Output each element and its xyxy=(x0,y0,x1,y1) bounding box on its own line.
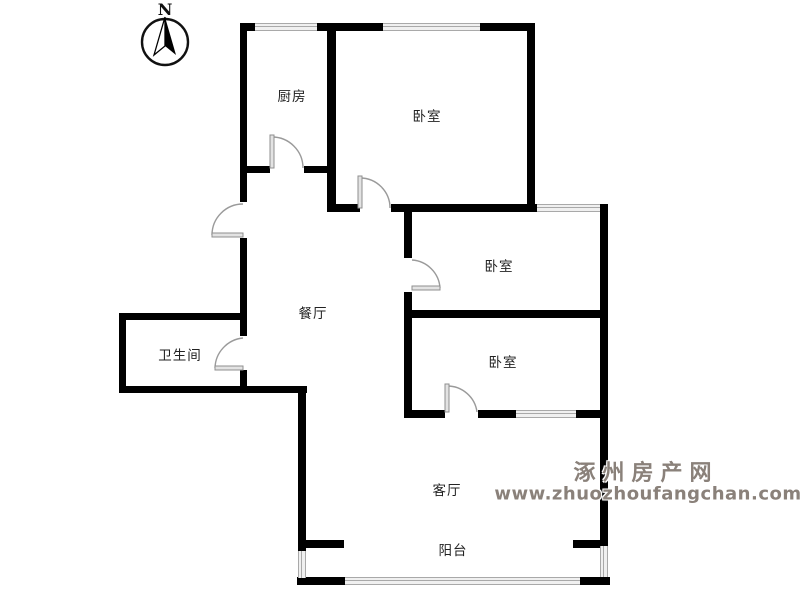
door-leaf xyxy=(270,135,274,168)
floor-plan: N xyxy=(0,0,800,600)
compass-north-label: N xyxy=(158,0,173,19)
door-leaf xyxy=(412,286,440,290)
wall xyxy=(240,23,247,202)
compass: N xyxy=(134,0,196,72)
wall xyxy=(298,386,306,551)
door-leaf xyxy=(445,384,449,412)
wall xyxy=(391,204,537,212)
north-arrow-icon xyxy=(165,17,176,55)
wall xyxy=(327,23,336,212)
room-label-bathroom: 卫生间 xyxy=(158,344,202,364)
kitchen-door xyxy=(266,132,308,173)
room-label-kitchen: 厨房 xyxy=(278,85,307,105)
room-label-living: 客厅 xyxy=(433,479,462,499)
wall xyxy=(478,410,516,418)
wall xyxy=(404,212,412,258)
entry-door xyxy=(205,198,250,245)
door-arc xyxy=(272,137,303,168)
window xyxy=(255,23,317,31)
room-label-balcony: 阳台 xyxy=(439,539,468,559)
bedroom-2-door xyxy=(408,256,444,294)
wall xyxy=(527,23,535,212)
bathroom-door xyxy=(211,334,247,374)
window xyxy=(298,551,306,578)
wall xyxy=(240,238,247,336)
door-leaf xyxy=(212,233,243,237)
door-leaf xyxy=(215,366,243,370)
wall xyxy=(297,577,345,585)
wall xyxy=(580,577,610,585)
wall xyxy=(404,310,608,318)
room-label-dining: 餐厅 xyxy=(299,302,328,322)
room-label-bedroom-1: 卧室 xyxy=(413,105,442,125)
door-arc xyxy=(360,178,390,208)
watermark-site-name: 涿州房产网 xyxy=(573,455,718,487)
window xyxy=(516,410,576,418)
door-arc xyxy=(212,204,243,235)
wall xyxy=(119,386,307,393)
watermark-site-url: www.zhuozhoufangchan.com xyxy=(494,484,800,505)
door-arc xyxy=(412,260,440,288)
door-arc xyxy=(447,386,477,412)
north-arrow-outline-icon xyxy=(154,17,165,55)
bedroom-1-door xyxy=(355,172,395,212)
wall xyxy=(404,410,445,418)
wall xyxy=(119,313,126,393)
wall xyxy=(576,410,608,418)
wall xyxy=(298,540,344,548)
window xyxy=(537,204,600,212)
window xyxy=(345,577,580,585)
bedroom-3-door xyxy=(443,380,481,416)
wall xyxy=(119,313,247,320)
window xyxy=(383,23,480,31)
room-label-bedroom-3: 卧室 xyxy=(489,351,518,371)
door-leaf xyxy=(358,176,362,208)
room-label-bedroom-2: 卧室 xyxy=(485,255,514,275)
window xyxy=(600,546,608,577)
door-arc xyxy=(215,338,243,368)
